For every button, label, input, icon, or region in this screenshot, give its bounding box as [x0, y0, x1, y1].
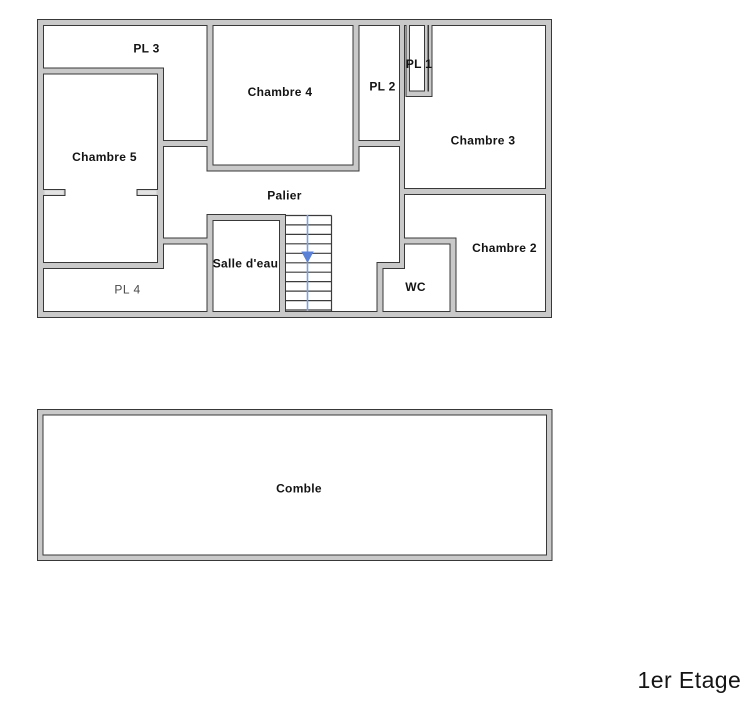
- svg-text:Comble: Comble: [276, 482, 322, 496]
- svg-text:PL 4: PL 4: [114, 283, 140, 297]
- svg-text:Chambre 4: Chambre 4: [248, 85, 313, 99]
- svg-text:PL 1: PL 1: [406, 57, 432, 71]
- svg-text:Chambre 3: Chambre 3: [451, 134, 516, 148]
- svg-text:PL 3: PL 3: [133, 42, 159, 56]
- svg-text:Chambre 2: Chambre 2: [472, 241, 537, 255]
- svg-text:Salle d'eau: Salle d'eau: [213, 257, 279, 271]
- svg-text:1er Etage: 1er Etage: [638, 667, 742, 693]
- svg-text:PL 2: PL 2: [369, 80, 395, 94]
- svg-text:WC: WC: [405, 280, 426, 294]
- svg-text:Palier: Palier: [267, 189, 302, 203]
- svg-text:Chambre 5: Chambre 5: [72, 150, 137, 164]
